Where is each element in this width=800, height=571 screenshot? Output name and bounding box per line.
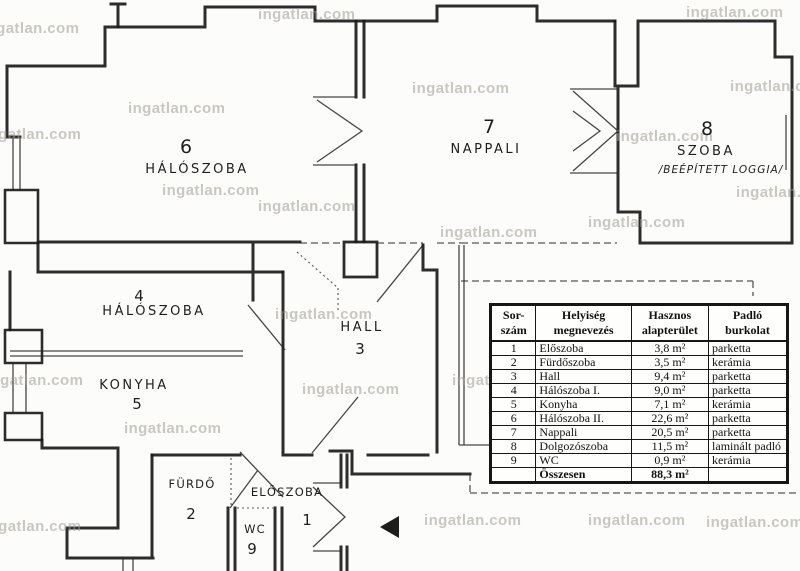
cell-name: Összesen	[536, 468, 631, 483]
wc-partition	[231, 458, 273, 508]
table-row: 8Dolgozószoba11,5 m²laminált padló	[491, 440, 788, 454]
scanned-floorplan-page: { "watermarks": { "text": "ingatlan.com"…	[0, 0, 800, 571]
furdo-number: 2	[186, 505, 196, 523]
outer-wall-lower-left	[42, 440, 153, 558]
table-row: 1Előszoba3,8 m²parketta	[491, 341, 788, 356]
cell-no: 2	[491, 356, 536, 370]
cell-name: Hálószoba I.	[536, 384, 631, 398]
cell-no: 5	[491, 398, 536, 412]
door-swing-dotted	[297, 252, 338, 313]
cell-floor: parketta	[709, 426, 788, 440]
cell-name: WC	[536, 454, 631, 468]
room8-number: 8	[701, 118, 713, 140]
cell-area: 9,0 m²	[631, 384, 708, 398]
cell-no: 7	[491, 426, 536, 440]
cell-name: Hálószoba II.	[536, 412, 631, 426]
table-body: 1Előszoba3,8 m²parketta2Fürdőszoba3,5 m²…	[491, 341, 788, 483]
wall-room4-konyha	[10, 351, 243, 356]
cell-floor: parketta	[709, 412, 788, 426]
door-room8-icon	[570, 89, 618, 173]
cell-area: 22,6 m²	[631, 412, 708, 426]
eloszoba-number: 1	[302, 511, 312, 529]
konyha-label: KONYHA	[99, 378, 168, 393]
eloszoba-label: ELŐSZOBA	[251, 485, 323, 499]
wall-eloszoba-right	[341, 455, 347, 571]
table-header-row: Sor- számHelyiség megnevezésHasznos alap…	[491, 305, 788, 342]
table-row: 7Nappali20,5 m²parketta	[491, 426, 788, 440]
table-header-cell: Helyiség megnevezés	[536, 305, 631, 342]
wall-room6-room7	[356, 21, 364, 242]
room6-label: HÁLÓSZOBA	[145, 162, 248, 177]
door-room6-icon	[313, 97, 362, 165]
cell-no	[491, 468, 536, 483]
cell-floor	[709, 468, 788, 483]
cell-floor: kerámia	[709, 454, 788, 468]
outer-wall-left	[7, 27, 118, 330]
cell-name: Előszoba	[536, 341, 631, 356]
cell-name: Dolgozószoba	[536, 440, 631, 454]
room-area-table: Sor- számHelyiség megnevezésHasznos alap…	[489, 303, 789, 484]
table-row: 2Fürdőszoba3,5 m²kerámia	[491, 356, 788, 370]
walls-corridor	[152, 272, 428, 455]
table-row: 3Hall9,4 m²parketta	[491, 370, 788, 384]
room8-label: SZOBA	[677, 144, 735, 159]
cell-floor: kerámia	[709, 356, 788, 370]
floorplan-walls	[0, 0, 800, 571]
table-header-cell: Padló burkolat	[709, 305, 788, 342]
cell-name: Konyha	[536, 398, 631, 412]
cell-name: Fürdőszoba	[536, 356, 631, 370]
cell-area: 3,8 m²	[631, 341, 708, 356]
cell-area: 7,1 m²	[631, 398, 708, 412]
cell-no: 3	[491, 370, 536, 384]
cell-no: 6	[491, 412, 536, 426]
cell-floor: kerámia	[709, 398, 788, 412]
table-row: 9WC0,9 m²kerámia	[491, 454, 788, 468]
entrance-arrow-icon	[380, 516, 399, 538]
cell-area: 11,5 m²	[631, 440, 708, 454]
room6-number: 6	[180, 136, 192, 158]
cell-area: 0,9 m²	[631, 454, 708, 468]
room4-label: HÁLÓSZOBA	[102, 304, 205, 319]
cell-floor: parketta	[709, 370, 788, 384]
room7-number: 7	[483, 116, 495, 138]
chimney-box	[344, 242, 377, 277]
room7-label: NAPPALI	[451, 142, 522, 157]
room8-sublabel: /BEÉPÍTETT LOGGIA/	[659, 164, 784, 176]
table-row: 4Hálószoba I.9,0 m²parketta	[491, 384, 788, 398]
table-row: Összesen88,3 m²	[491, 468, 788, 483]
konyha-number: 5	[132, 395, 142, 413]
cell-floor: laminált padló	[709, 440, 788, 454]
cell-floor: parketta	[709, 341, 788, 356]
cell-no: 1	[491, 341, 536, 356]
hall-label: HALL	[340, 320, 383, 335]
wc-number: 9	[247, 540, 257, 558]
cell-no: 9	[491, 454, 536, 468]
cell-area: 9,4 m²	[631, 370, 708, 384]
cell-floor: parketta	[709, 384, 788, 398]
table-header-cell: Sor- szám	[491, 305, 536, 342]
cell-no: 8	[491, 440, 536, 454]
cell-area: 20,5 m²	[631, 426, 708, 440]
table-row: 6Hálószoba II.22,6 m²parketta	[491, 412, 788, 426]
room4-number: 4	[134, 287, 144, 305]
table-row: 5Konyha7,1 m²kerámia	[491, 398, 788, 412]
door-swings	[230, 245, 423, 508]
cell-area: 88,3 m²	[631, 468, 708, 483]
table-header-cell: Hasznos alapterület	[631, 305, 708, 342]
cell-name: Hall	[536, 370, 631, 384]
cell-name: Nappali	[536, 426, 631, 440]
furdo-label: FÜRDŐ	[169, 477, 216, 491]
wc-label: WC	[244, 522, 266, 536]
hall-number: 3	[355, 340, 365, 358]
cell-area: 3,5 m²	[631, 356, 708, 370]
cell-no: 4	[491, 384, 536, 398]
